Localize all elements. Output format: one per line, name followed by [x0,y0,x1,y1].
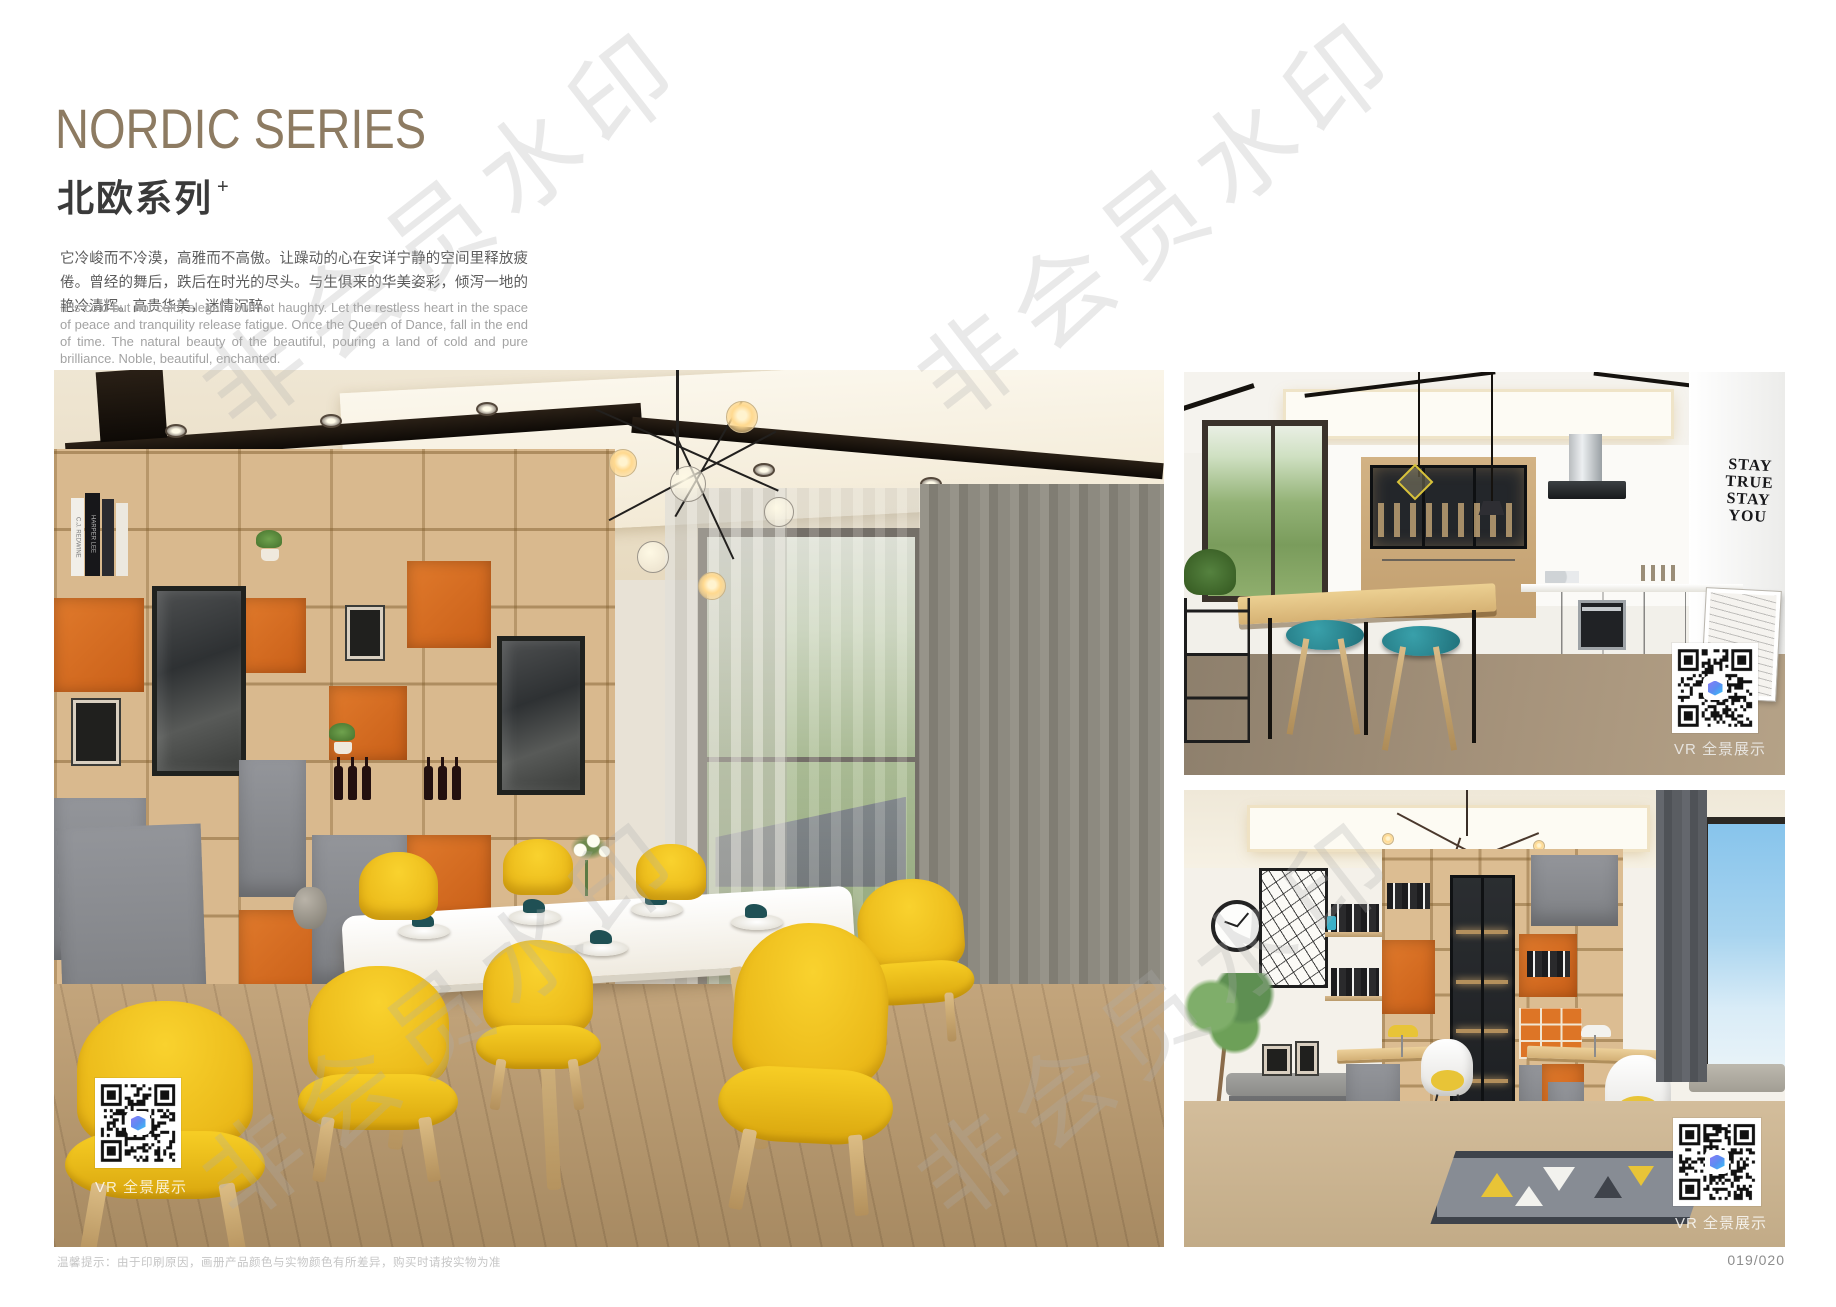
shelf-cell-orange [239,598,306,673]
rug-triangle [1628,1166,1654,1186]
page-number: 019/020 [1640,1252,1785,1268]
standing-frames [1262,1044,1292,1076]
abstract-art-frame [1259,868,1328,988]
study-window [1701,817,1785,1078]
catalog-page: NORDIC SERIES 北欧系列+ 它冷峻而不冷漠，高雅而不高傲。让躁动的心… [0,0,1836,1307]
rug-triangle [1481,1173,1513,1197]
book-spine [116,503,128,576]
wine-bottle [452,766,461,800]
shelf-glass-cabinet [497,636,585,795]
vr-qr-code [95,1078,181,1168]
chair-leg [847,1134,868,1216]
standing-frames [1295,1041,1319,1075]
chair-leg [418,1116,441,1182]
shelf-plant [256,530,282,548]
dining-chair-yellow [713,918,903,1217]
study-curtain [1656,790,1707,1082]
wall-decal-stay-true: STAY TRUE STAY YOU [1714,455,1784,526]
wine-bottle [334,766,343,800]
book-spine: HARPER LEE [85,493,100,577]
dining-chair-yellow [631,844,711,944]
chandelier-stem [676,370,679,475]
bar-table-leg [1472,610,1476,743]
shelf-books [1331,968,1379,995]
dining-chair-yellow [498,839,578,939]
shelf-gray-door [1531,855,1618,926]
book-spine [102,499,114,576]
upper-glass-cabinet [1370,465,1526,550]
house-plant [1184,549,1236,595]
decal-line: YOU [1714,506,1781,526]
decal-line: TRUE [1716,472,1783,492]
chair-leg [218,1183,247,1247]
shelf-books [1387,883,1430,908]
floor-jar [293,887,327,929]
wine-bottle [348,766,357,800]
wall-shelf [1325,932,1385,937]
ceiling-track [96,370,167,442]
chandelier-cord [1466,790,1468,836]
chair-back [503,839,573,895]
photo-frame [345,605,384,661]
glass-door-divider [1481,875,1484,1124]
range-hood-duct [1569,434,1602,482]
study-shelving-unit [1382,849,1622,1132]
ceiling-spotlight [476,402,498,416]
bar-table-leg [1364,622,1368,735]
bar-stool-teal [1382,626,1460,656]
kitchen-ceiling-cove [1286,392,1671,436]
utensil-rail [1382,559,1514,561]
wine-bottle [424,766,433,800]
teal-vase [1327,916,1336,930]
wall-shelf [1325,996,1385,1001]
geometric-rug [1430,1151,1712,1224]
desk-lamp [1581,1025,1611,1037]
page-subtitle-cn: 北欧系列+ [57,168,231,222]
chair-back [483,940,593,1035]
wall-clock [1211,900,1263,952]
chandelier-globe [637,541,669,573]
shelf-books [1331,904,1379,931]
vr-panorama-label: VR 全景展示 [1675,1212,1767,1233]
bar-table-leg [1268,618,1272,739]
chair-back [730,919,892,1089]
chair-leg [567,1059,584,1111]
left-shelf-unit [1184,598,1250,743]
ceiling-spotlight [320,414,342,428]
subtitle-plus: + [217,176,231,198]
book-spine: C.J. REDWINE [71,498,84,576]
wine-bottle [438,766,447,800]
chair-leg [490,1059,507,1111]
plant-pot [334,742,352,754]
chair-leg [944,991,957,1041]
built-in-oven [1578,600,1626,650]
chair-leg [312,1116,335,1182]
vr-panorama-label: VR 全景展示 [1674,738,1766,759]
chandelier-globe [609,449,637,477]
wine-bottle [362,766,371,800]
stove-pots [1545,571,1579,583]
dining-chair-yellow [298,966,458,1181]
dining-chair-yellow [476,940,601,1110]
dining-chair-yellow [354,852,444,972]
study-room-photo: VR 全景展示 [1184,790,1785,1247]
shelf-cell-orange [407,561,491,648]
dining-room-photo: C.J. REDWINE HARPER LEE [54,370,1164,1247]
rug-triangle [1594,1176,1622,1198]
photo-frame [71,698,121,766]
vr-cube-logo-icon [1705,1150,1729,1174]
page-title: NORDIC SERIES [55,96,426,161]
pendant-cord [1418,372,1420,477]
shelf-glass-cabinet [152,586,246,777]
range-hood [1548,481,1626,499]
pendant-cord [1491,372,1493,505]
subtitle-text: 北欧系列 [57,178,213,219]
vr-cube-logo-icon [126,1111,150,1135]
chair-back [359,852,438,919]
bar-stool-teal [1286,620,1364,650]
vr-cube-logo-icon [1703,676,1727,700]
desk-lamp [1388,1025,1418,1037]
study-ceiling-cove [1250,808,1647,849]
window-mullion [1271,426,1275,595]
chair-leg [728,1127,757,1209]
chandelier-globe [726,401,758,433]
plant-pot [261,549,279,561]
shelf-books [1527,951,1570,976]
vr-panorama-label: VR 全景展示 [95,1176,187,1197]
shelf-cell-orange [54,598,144,691]
shelf-plant [329,723,355,741]
kitchen-photo: STAY TRUE STAY YOU VR 全景展示 [1184,372,1785,775]
rug-triangle [1543,1167,1575,1191]
footer-disclaimer: 温馨提示：由于印刷原因，画册产品颜色与实物颜色有所差异，购买时请按实物为准 [57,1254,501,1270]
chair-seat [476,1025,601,1069]
rug-triangle [1515,1186,1543,1206]
chair-back [636,844,706,900]
book-row: C.J. REDWINE HARPER LEE [71,493,149,580]
shelf-cell-orange [1382,940,1435,1014]
chair-back [308,966,449,1086]
vr-qr-code [1673,1118,1761,1206]
intro-paragraph-en: It is cold but not cold, elegant but not… [60,299,528,367]
counter-bottles [1641,565,1681,581]
chandelier-globe [698,572,726,600]
vr-qr-code [1672,643,1758,733]
chair-cushion-yellow [1431,1070,1464,1090]
shelf-gray-door [239,760,306,897]
